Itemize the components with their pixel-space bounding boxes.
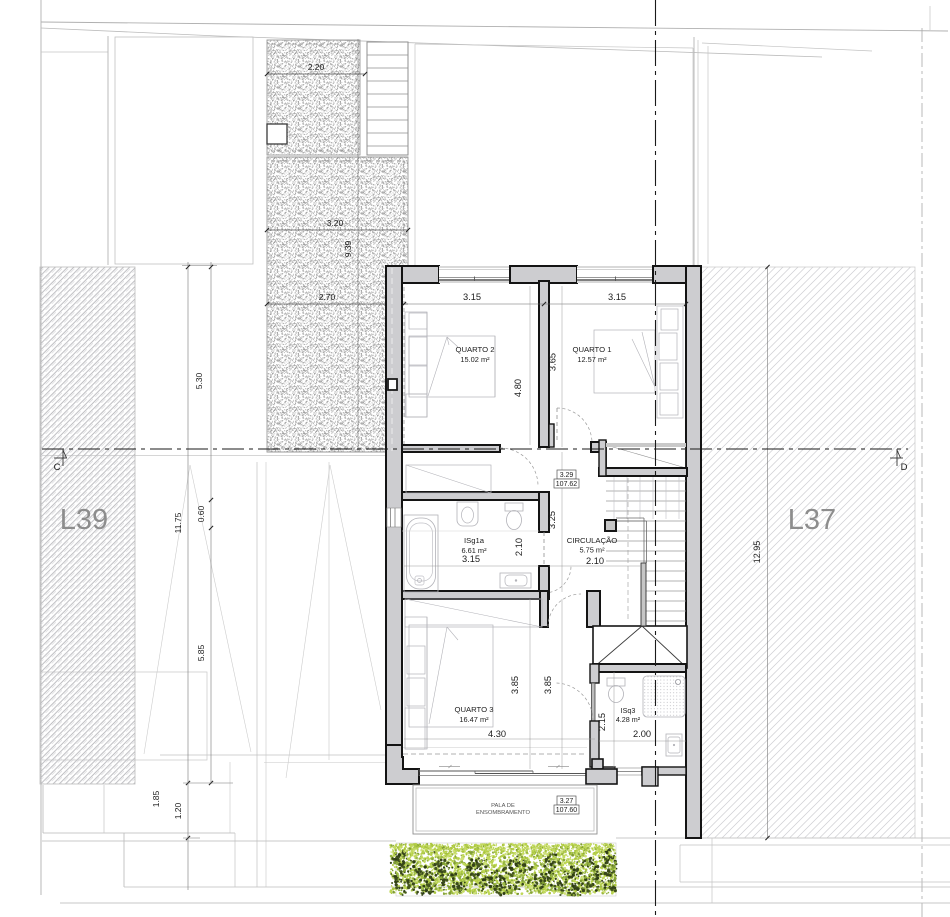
svg-text:3.85: 3.85	[510, 676, 520, 694]
svg-text:2.20: 2.20	[308, 62, 325, 72]
svg-text:ISq3: ISq3	[621, 706, 636, 715]
svg-text:PALA DE: PALA DE	[491, 803, 515, 809]
svg-text:2.15: 2.15	[597, 713, 607, 731]
svg-text:5.85: 5.85	[196, 644, 206, 661]
svg-text:2.70: 2.70	[319, 292, 336, 302]
svg-text:11.75: 11.75	[173, 512, 183, 533]
svg-text:1.20: 1.20	[173, 802, 183, 819]
svg-text:CIRCULAÇÃO: CIRCULAÇÃO	[567, 536, 617, 545]
svg-text:3.15: 3.15	[608, 292, 626, 302]
svg-text:3.20: 3.20	[327, 218, 344, 228]
svg-text:2.10: 2.10	[586, 556, 604, 566]
svg-text:ENSOMBRAMENTO: ENSOMBRAMENTO	[476, 810, 530, 816]
svg-text:QUARTO 3: QUARTO 3	[454, 705, 493, 714]
svg-text:2.00: 2.00	[633, 729, 651, 739]
svg-text:D: D	[901, 462, 908, 473]
svg-text:107.60: 107.60	[556, 807, 578, 814]
svg-text:L37: L37	[788, 504, 836, 536]
svg-text:3.15: 3.15	[463, 292, 481, 302]
svg-text:QUARTO 1: QUARTO 1	[572, 345, 611, 354]
svg-text:3.25: 3.25	[547, 511, 557, 529]
svg-text:16.47 m²: 16.47 m²	[459, 715, 489, 724]
svg-text:1.85: 1.85	[151, 790, 161, 807]
svg-text:12.95: 12.95	[752, 541, 762, 564]
svg-text:12.57 m²: 12.57 m²	[577, 355, 607, 364]
svg-text:5.30: 5.30	[194, 372, 204, 389]
svg-text:3.85: 3.85	[543, 676, 553, 694]
svg-text:3.27: 3.27	[560, 798, 574, 805]
svg-text:QUARTO 2: QUARTO 2	[455, 345, 494, 354]
svg-text:2.10: 2.10	[514, 538, 524, 556]
svg-text:3.29: 3.29	[560, 472, 574, 479]
svg-text:4.30: 4.30	[488, 729, 506, 739]
svg-text:107.62: 107.62	[556, 481, 578, 488]
svg-text:3.65: 3.65	[548, 353, 558, 371]
svg-text:L39: L39	[60, 504, 108, 536]
svg-text:15.02 m²: 15.02 m²	[460, 355, 490, 364]
svg-text:5.75 m²: 5.75 m²	[579, 546, 605, 555]
svg-text:3.15: 3.15	[462, 554, 480, 564]
svg-text:4.80: 4.80	[513, 379, 523, 397]
svg-text:C: C	[54, 462, 61, 473]
svg-text:ISg1a: ISg1a	[464, 536, 485, 545]
svg-text:4.28 m²: 4.28 m²	[616, 715, 641, 724]
svg-text:9.39: 9.39	[343, 240, 353, 257]
svg-text:0.60: 0.60	[196, 505, 206, 522]
